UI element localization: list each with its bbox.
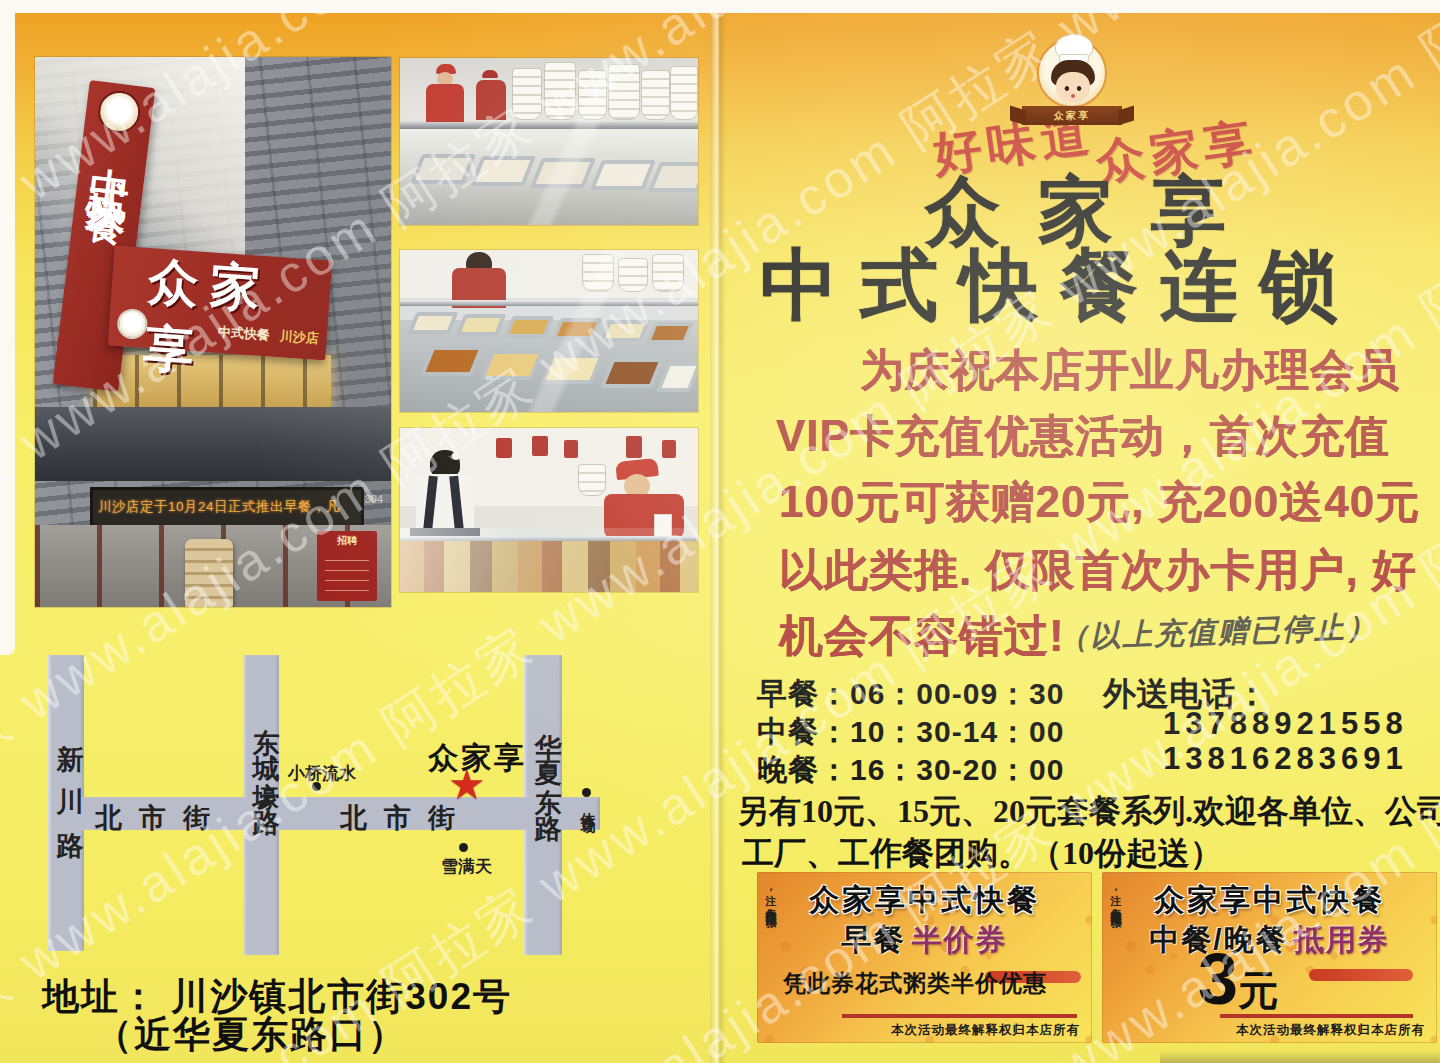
coupon-breakfast: 注，每人每次仅限抵用一张 众家享中式快餐 早餐半价券 凭此券花式粥类半价优惠 本… (757, 872, 1092, 1043)
vertical-sign-text: 中式快餐 (89, 134, 137, 187)
photo-food-trays (400, 250, 698, 412)
sign-subtitle-type: 中式快餐 (217, 324, 270, 343)
setmeal-line-2: 工厂、工作餐团购。（10份起送） (742, 832, 1222, 876)
wall-poster (496, 438, 512, 458)
map-poi-label-snow: 雪满天 (441, 855, 492, 878)
hours-dinner: 晚餐：16：30-20：00 (757, 750, 1064, 791)
map-poi-dot-bridge (312, 782, 321, 791)
delivery-phone-2: 13816283691 (1163, 741, 1408, 777)
coupon-title: 众家享中式快餐 (1102, 880, 1437, 921)
led-text: 川沙店定于10月24日正式推出早餐，凡 (98, 499, 340, 514)
coupon-amount: 3元 (1198, 938, 1278, 1020)
chef-face (1056, 72, 1090, 102)
setmeal-line-1: 另有10元、15元、20元套餐系列.欢迎各单位、公司、 (737, 790, 1440, 834)
chain-title: 中式快餐连锁 (760, 234, 1360, 339)
fold-crease (710, 0, 726, 1063)
map-poi-dot-snow (459, 843, 468, 852)
brand-logo-icon (1037, 38, 1107, 108)
coupon-red-bar (1309, 969, 1413, 981)
promo-line-2: VIP卡充值优惠活动，首次充值 (776, 407, 1390, 466)
steamer-stack (185, 539, 233, 607)
address-line2: （近华夏东路口） (95, 1010, 407, 1060)
sign-subtitle-branch: 川沙店 (279, 328, 319, 346)
vertical-sign-logo-icon (96, 89, 143, 136)
wall-poster (626, 436, 642, 458)
coupon-amount-unit: 元 (1238, 968, 1278, 1012)
wall-poster (662, 440, 676, 458)
scan-edge-left (0, 0, 15, 655)
map-poi-label-bridge: 小桥流水 (288, 762, 356, 785)
coupon-kind-type: 抵用券 (1294, 923, 1390, 956)
coupon-disclaimer: 本次活动最终解释权归本店所有 (1236, 1022, 1425, 1039)
map-road-label-xinchuan: 新川路 (52, 722, 88, 952)
wall-poster (532, 436, 548, 456)
sneeze-guard-glass (400, 528, 698, 592)
coupon-underline (1220, 1014, 1413, 1018)
flyer-scan: 川沙店定于10月24日正式推出早餐，凡 304 招聘 中式快餐 众家享 中式快餐… (0, 0, 1440, 1063)
house-number: 304 (365, 493, 383, 505)
promo-line-1: 为庆祝本店开业凡办理会员 (860, 341, 1400, 400)
hours-breakfast: 早餐：06：00-09：30 (757, 674, 1064, 715)
logo-ribbon: 众家享 (1022, 106, 1122, 125)
coupon-underline (842, 1014, 1077, 1018)
map-poi-label-stadium: 体育场 (578, 800, 597, 860)
promo-line-4: 以此类推. 仅限首次办卡用户, 好 (779, 541, 1417, 600)
horizontal-sign: 众家享 中式快餐川沙店 (108, 246, 332, 361)
handwritten-note: （以上充值赠已停止） (1057, 606, 1378, 658)
promo-line-5: 机会不容错过! (779, 607, 1065, 666)
coupon-title: 众家享中式快餐 (757, 880, 1092, 921)
coupon-kind-type: 半价券 (912, 923, 1008, 956)
map-road-label-beishijie-west: 北市街 (95, 800, 227, 836)
coupon-amount-number: 3 (1198, 939, 1238, 1019)
coupon-lunch-dinner: 注，每人每次仅限抵用一张 众家享中式快餐 中餐/晚餐抵用券 3元 本次活动最终解… (1102, 872, 1437, 1043)
scan-edge-top (0, 0, 1440, 13)
sign-brand-name: 众家享 (141, 248, 332, 394)
scan-shadow-bottom (1160, 1051, 1440, 1063)
delivery-phone-1: 13788921558 (1163, 706, 1408, 742)
coupon-kind-meal: 早餐 (842, 923, 906, 956)
bowl-stack (578, 464, 606, 496)
customer-hairclip (452, 452, 460, 460)
hours-lunch: 中餐：10：30-14：00 (757, 712, 1064, 753)
map-road-label-dongchenghao: 东城壕路 (248, 706, 284, 956)
photo-storefront: 川沙店定于10月24日正式推出早餐，凡 304 招聘 中式快餐 众家享 中式快餐… (35, 57, 391, 607)
poster-title: 招聘 (337, 535, 357, 546)
coupon-disclaimer: 本次活动最终解释权归本店所有 (891, 1022, 1080, 1039)
shop-front: 招聘 (35, 525, 391, 607)
promo-line-3: 100元可获赠20元, 充200送40元 (779, 473, 1420, 532)
coupon-body-text: 凭此券花式粥类半价优惠 (783, 968, 1047, 999)
storefront-canopy (35, 407, 391, 481)
map-road-label-huaxiadong: 华夏东路 (530, 712, 566, 957)
coupon-kind: 早餐半价券 (757, 920, 1092, 961)
wall-poster (564, 440, 578, 458)
photo-customer-counter (400, 428, 698, 592)
glass-glare (400, 250, 698, 412)
map-star-icon: ★ (448, 764, 486, 806)
recruitment-poster: 招聘 (317, 531, 377, 601)
map-poi-dot-stadium (582, 788, 591, 797)
photo-counter-bowls (400, 58, 698, 225)
glass-glare (400, 58, 698, 225)
logo-ribbon-text: 众家享 (1054, 110, 1090, 121)
